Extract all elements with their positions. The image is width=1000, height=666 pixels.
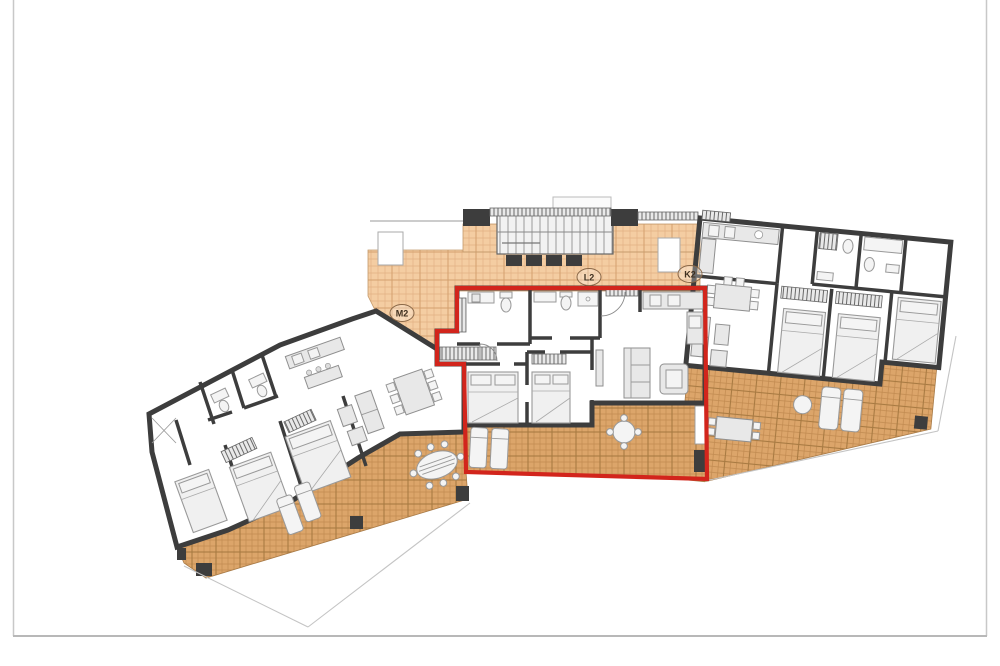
unit-right [675, 210, 956, 503]
terrace-pillar-4 [177, 548, 186, 560]
middle-bathroom-a [468, 292, 512, 312]
middle-bed-1 [468, 372, 518, 423]
unit-middle [437, 288, 707, 479]
right-bathroom-2 [862, 237, 903, 274]
middle-living-room [596, 348, 688, 398]
label-unit-right-text: K2 [684, 270, 696, 280]
label-unit-middle-text: L2 [584, 273, 595, 283]
label-unit-left-text: M2 [396, 309, 409, 319]
pillar-right [611, 209, 638, 226]
left-plot-boundary [184, 566, 308, 627]
right-wardrobe-2 [835, 291, 882, 307]
left-kitchen [285, 337, 352, 392]
label-unit-middle: L2 [577, 269, 601, 286]
terrace-pillar-1 [196, 563, 212, 576]
stair-core-and-walkway [368, 197, 700, 350]
left-dining-table [385, 366, 443, 418]
floor-plan-drawing: M2 L2 K2 [0, 0, 1000, 666]
right-bathroom-1 [816, 233, 854, 283]
right-bed-1 [778, 308, 826, 376]
middle-bathroom-b [534, 292, 598, 310]
landing-void-left [378, 232, 403, 265]
label-unit-left: M2 [390, 305, 414, 322]
terrace-pillar-2 [350, 516, 363, 529]
terrace-pillar-3 [456, 486, 469, 501]
middle-bed-2 [532, 372, 570, 423]
middle-shower-wall [458, 298, 466, 332]
left-bed-3 [175, 469, 227, 532]
right-kitchen [699, 222, 779, 279]
floor-plan-page: M2 L2 K2 [0, 0, 1000, 666]
left-storage-room [152, 418, 176, 443]
middle-kitchen [643, 292, 703, 344]
label-unit-right: K2 [678, 266, 702, 283]
pillar-left [463, 209, 490, 226]
right-bed-2 [832, 314, 880, 382]
right-bed-corner [892, 297, 941, 363]
middle-wardrobe-2 [532, 354, 566, 364]
hatched-wall-right [638, 212, 698, 220]
right-wardrobe-1 [781, 286, 828, 302]
unit-left [149, 311, 471, 627]
hatched-wall-top [490, 208, 611, 216]
landing-void-right [658, 238, 680, 272]
middle-wardrobe-1 [440, 347, 496, 360]
